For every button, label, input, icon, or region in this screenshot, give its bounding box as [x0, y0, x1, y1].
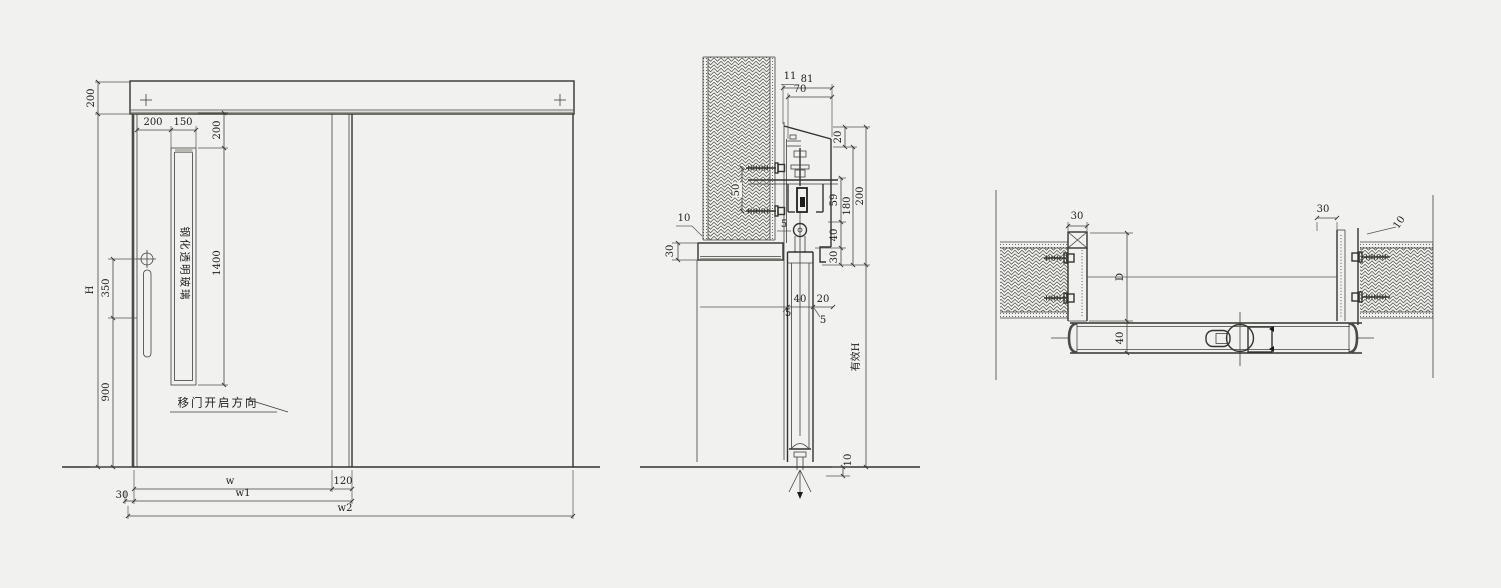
dim-350: 350 — [102, 278, 112, 297]
dim-20-door: 20 — [817, 295, 830, 305]
cad-canvas: 200 H 350 900 200 150 200 1400 钢化透明玻璃 移门… — [0, 0, 1501, 588]
door-leaf-section — [788, 252, 814, 462]
elevation-dimensions — [90, 82, 573, 519]
dim-w: w — [226, 477, 235, 487]
dim-120: 120 — [333, 477, 352, 487]
dim-glass-top-offset: 200 — [213, 120, 223, 139]
track-cover-hood — [784, 122, 831, 460]
dim-10-wall: 10 — [678, 214, 691, 224]
dim-70: 70 — [794, 85, 807, 95]
fixing-mark-left — [140, 94, 152, 106]
plan-view — [996, 190, 1433, 380]
pull-handle — [144, 270, 152, 357]
dim-glass-height: 1400 — [213, 250, 223, 275]
dim-50-anchors: 50 — [732, 183, 742, 198]
dim-5-left: 5 — [785, 309, 791, 319]
open-direction-label: 移门开启方向 — [178, 397, 259, 409]
section-view — [640, 57, 920, 499]
dim-header-height: 200 — [87, 88, 97, 107]
plan-jamb-right — [1337, 228, 1358, 325]
dim-30-left-plan: 30 — [1071, 212, 1084, 222]
dim-900: 900 — [102, 382, 112, 401]
dim-w2: w2 — [338, 504, 353, 514]
dim-glass-width: 150 — [173, 118, 192, 128]
dim-200-section: 200 — [856, 186, 866, 205]
dim-30-lintel: 30 — [666, 245, 676, 258]
dim-40-door: 40 — [794, 295, 807, 305]
dim-glass-left-offset: 200 — [143, 118, 162, 128]
lintel-beam — [698, 243, 783, 260]
dim-30-right-plan: 30 — [1317, 205, 1330, 215]
dim-w1: w1 — [236, 489, 251, 499]
dim-30-gap: 30 — [116, 491, 129, 501]
dim-total-height: H — [86, 286, 96, 295]
plan-door-leaf — [1051, 323, 1374, 353]
plan-wall-left — [996, 190, 1068, 380]
glass-note-label: 钢化透明玻璃 — [178, 227, 189, 302]
dim-40-side: 40 — [830, 229, 840, 242]
dim-180: 180 — [843, 196, 853, 215]
dim-59: 59 — [830, 194, 840, 207]
dim-5-right: 5 — [820, 316, 826, 326]
dim-effective-height: 有效H — [852, 343, 862, 372]
dim-depth-D: D — [1116, 273, 1126, 281]
plan-jamb-left — [1068, 232, 1087, 321]
drawing-linework — [0, 0, 1501, 588]
plan-lock-assembly — [1206, 312, 1274, 366]
floor-guide — [789, 444, 811, 500]
dim-5-track: 5 — [781, 220, 787, 230]
dim-30-side: 30 — [830, 251, 840, 264]
door-leaves — [133, 114, 573, 467]
header-rail — [130, 81, 574, 114]
dim-40-thickness: 40 — [1116, 332, 1126, 345]
fixing-mark-right — [554, 94, 566, 106]
dim-11: 11 — [784, 72, 797, 82]
dim-10-floor: 10 — [844, 454, 854, 467]
elevation-view — [62, 81, 600, 519]
dim-20-top: 20 — [834, 131, 844, 144]
